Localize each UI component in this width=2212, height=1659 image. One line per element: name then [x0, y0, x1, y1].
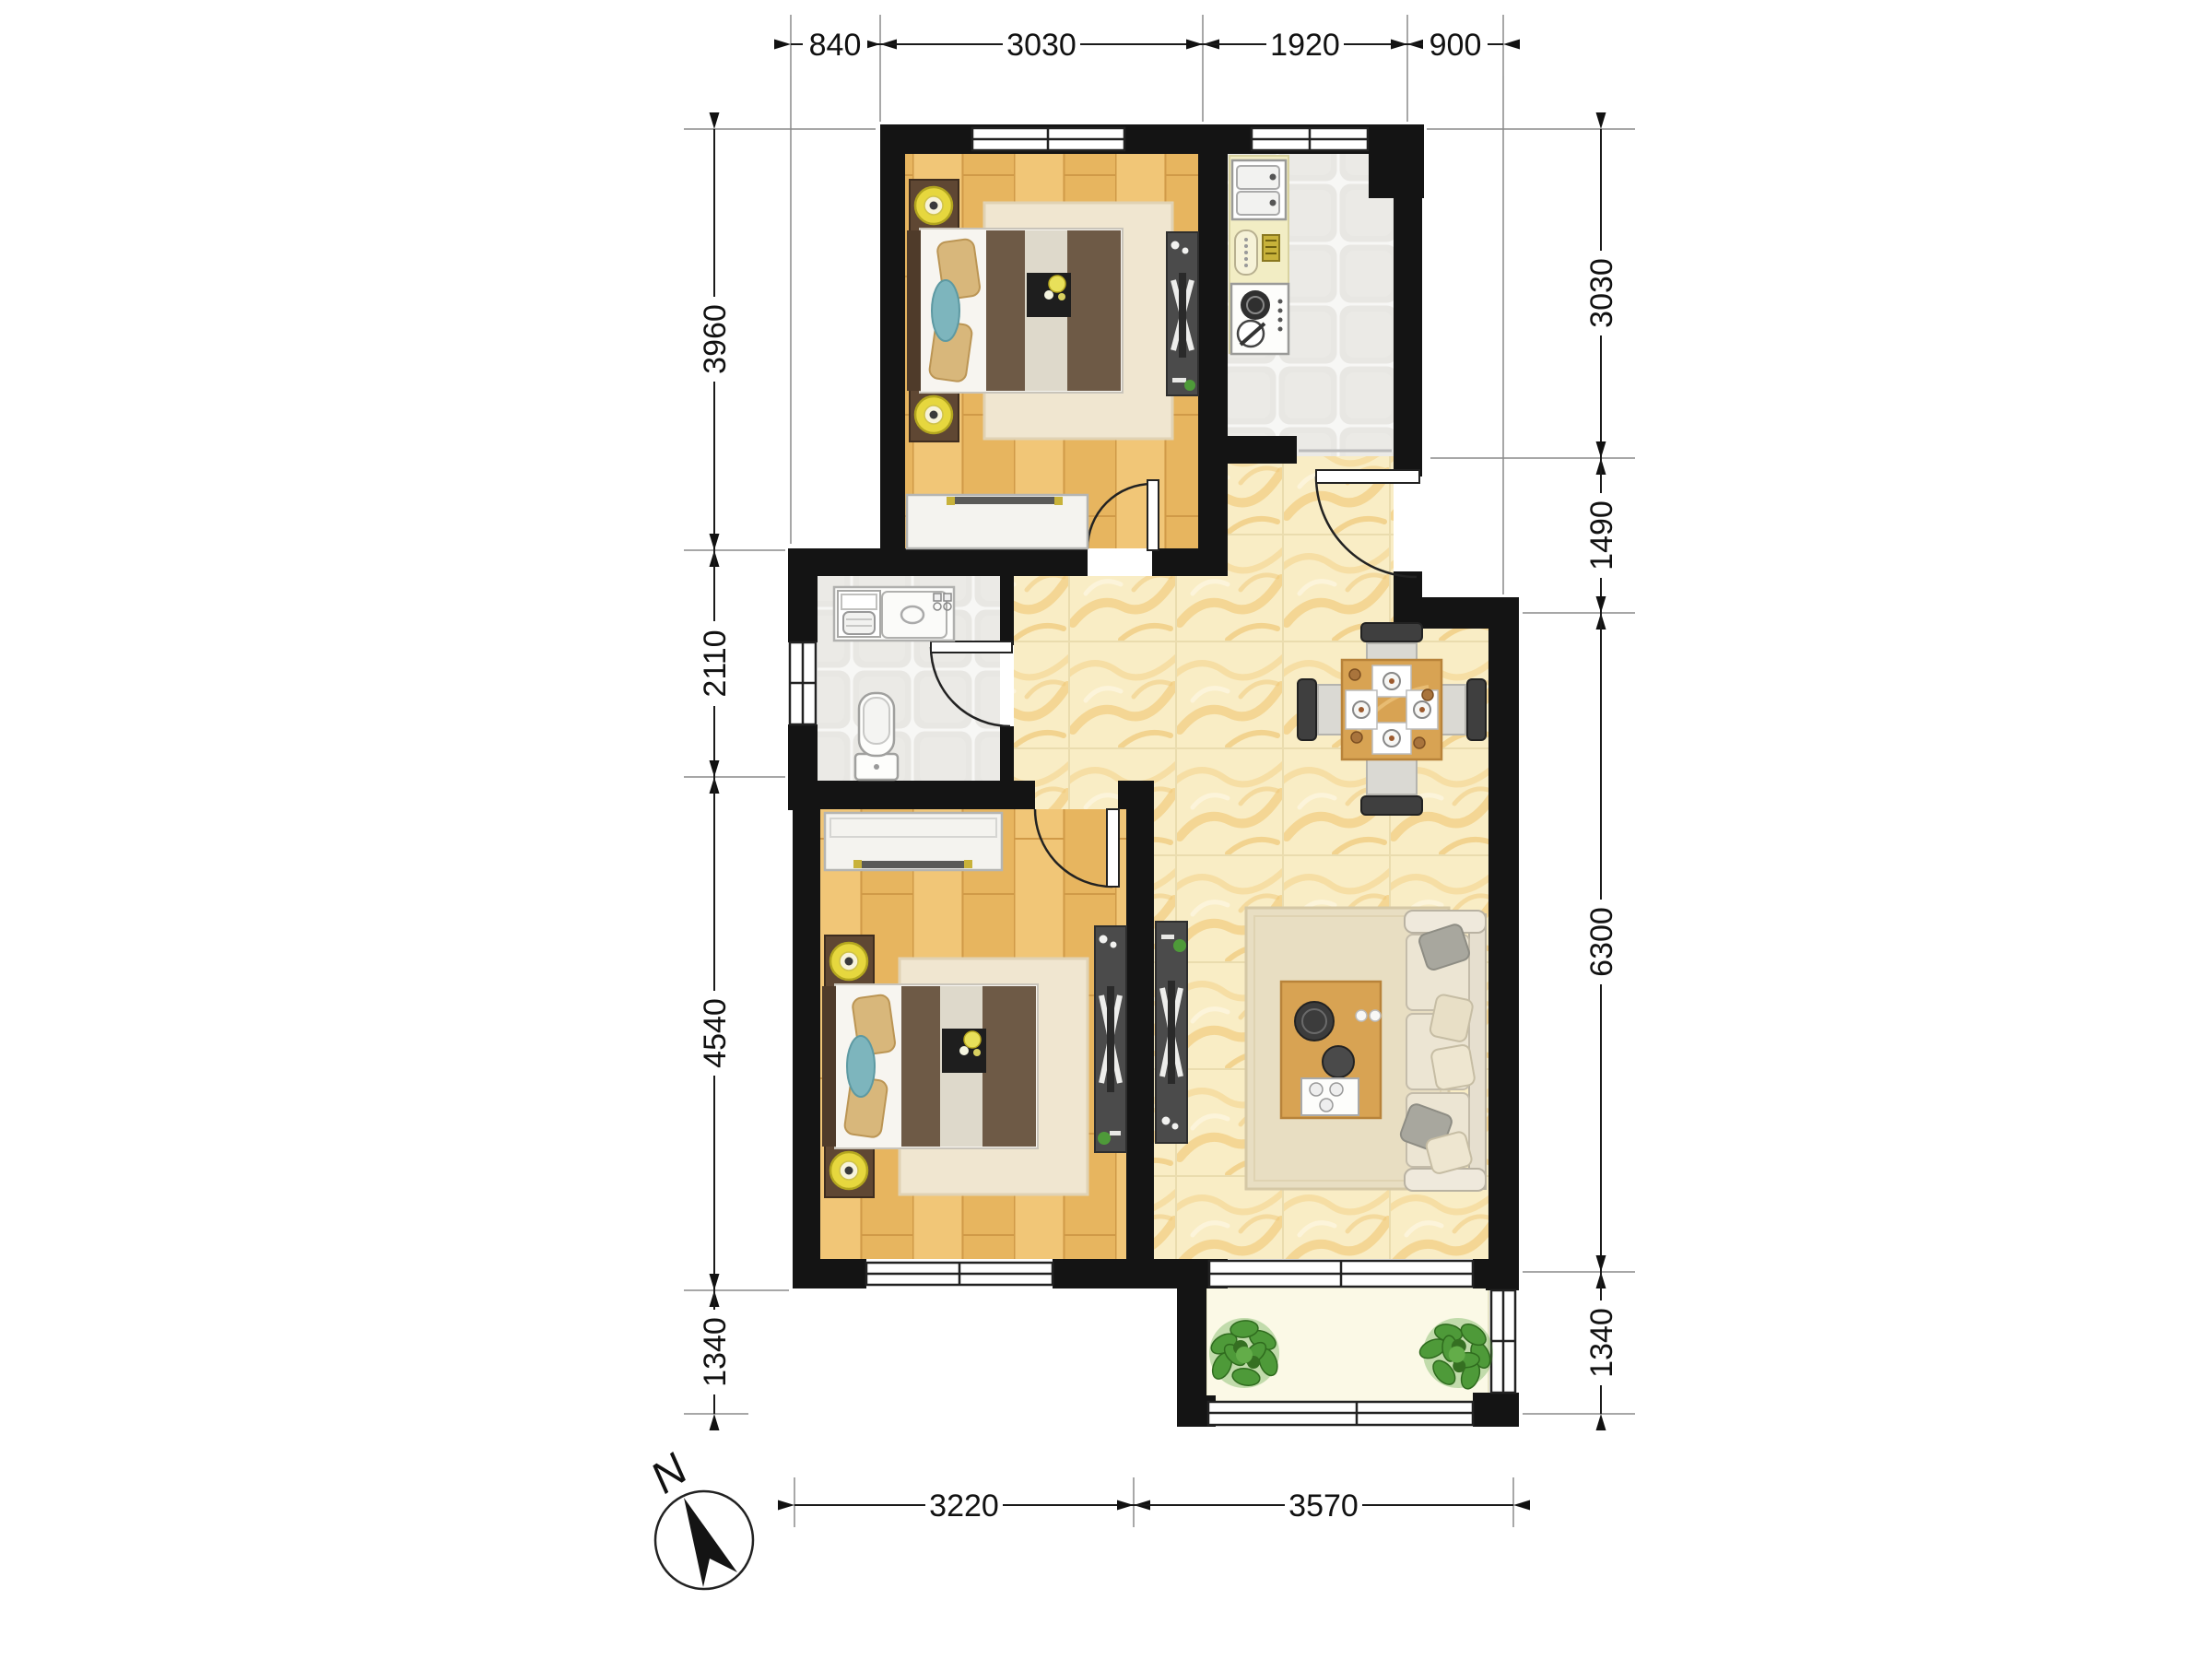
tv-cabinet-icon [1095, 926, 1126, 1152]
sofa-back [1469, 914, 1486, 1189]
kitchen-sink-icon [1232, 160, 1286, 219]
compass: N [642, 1444, 753, 1589]
dresser-knob [947, 497, 955, 505]
window-balcony-bottom [1208, 1402, 1473, 1425]
dining-chair-south [1361, 754, 1422, 815]
dimension-label: 3960 [698, 304, 733, 374]
throw-pillow [1429, 994, 1474, 1042]
dimension-label: 2110 [698, 629, 733, 697]
sofa-icon [1399, 911, 1486, 1191]
dresser-handle [954, 497, 1055, 504]
mini-plant-icon [1184, 380, 1195, 391]
throw-pillow [1430, 1044, 1476, 1091]
dimension-label: 6300 [1584, 907, 1619, 977]
tv-cabinet-icon [1167, 232, 1198, 395]
balcony-sliding-door [1209, 1261, 1473, 1287]
dimension-label: 840 [809, 28, 862, 63]
window-balcony-right [1491, 1290, 1515, 1393]
window-bedroom-bottom [866, 1263, 1053, 1285]
window-bedroom-top [972, 128, 1124, 150]
floor-plan-canvas: 840 3030 1920 900 3960 2110 4540 1340 30… [0, 0, 2212, 1659]
bed-icon [822, 935, 1088, 1197]
washing-machine-icon [838, 591, 880, 637]
dimension-label: 900 [1430, 28, 1482, 63]
bed-icon [907, 180, 1172, 441]
dimension-label: 3030 [1006, 28, 1077, 63]
coffee-table-icon [1281, 982, 1381, 1118]
mini-plant-icon [1098, 1132, 1111, 1145]
dresser-knob [1054, 497, 1063, 505]
floor-plan-page: 840 3030 1920 900 3960 2110 4540 1340 30… [0, 0, 2212, 1659]
wardrobe-handle [862, 861, 965, 868]
dimension-label: 1340 [1584, 1308, 1619, 1378]
window-kitchen [1252, 128, 1368, 150]
dimension-label: 3220 [929, 1488, 999, 1524]
dimension-label: 1920 [1270, 28, 1340, 63]
dimension-label: 3030 [1584, 258, 1619, 328]
mini-plant-icon [1173, 939, 1186, 952]
dimension-label: 4540 [698, 998, 733, 1068]
dimension-label: 1490 [1584, 500, 1619, 571]
bathroom-sink-icon [882, 592, 951, 638]
kitchen-furniture [1230, 156, 1288, 354]
tv-cabinet-icon [1156, 922, 1187, 1143]
wardrobe-knob [853, 860, 862, 868]
wardrobe-knob [964, 860, 972, 868]
toilet-icon [855, 693, 898, 780]
dimension-label: 1340 [698, 1317, 733, 1387]
window-bathroom [790, 642, 816, 724]
stove-icon [1231, 284, 1288, 354]
dimension-label: 3570 [1288, 1488, 1359, 1524]
